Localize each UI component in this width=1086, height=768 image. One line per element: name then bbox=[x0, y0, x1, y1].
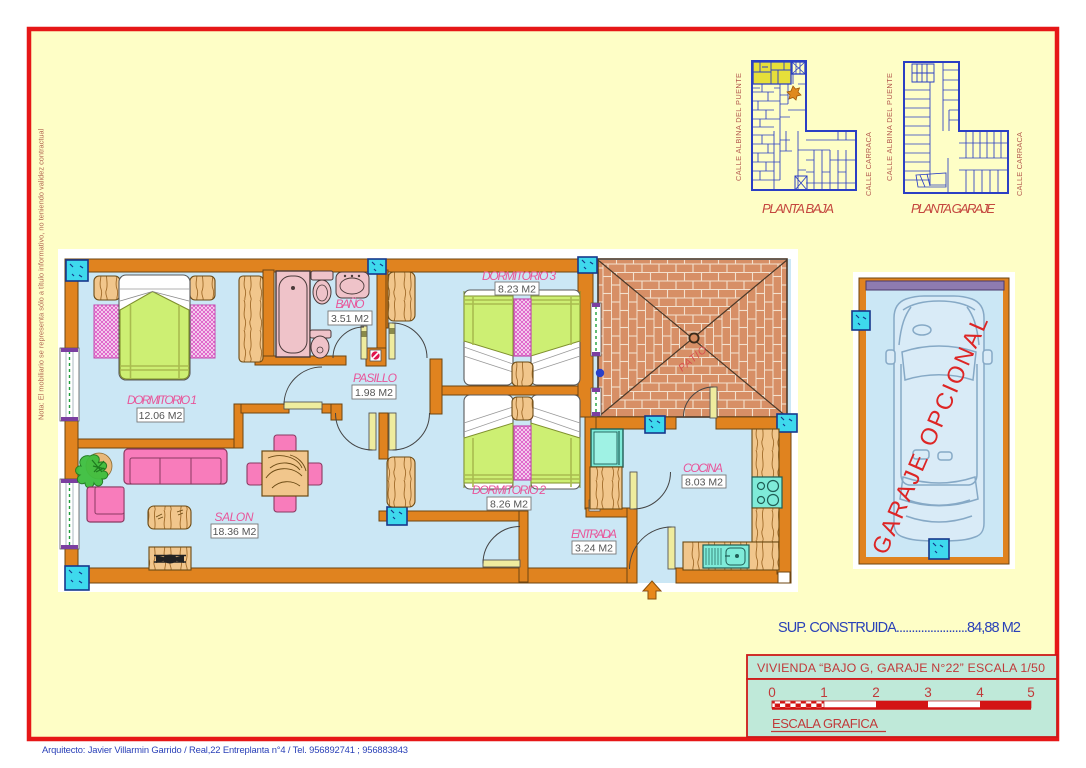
svg-text:PLANTA BAJA: PLANTA BAJA bbox=[762, 201, 834, 216]
svg-text:0: 0 bbox=[768, 685, 776, 700]
svg-text:8.26 M2: 8.26 M2 bbox=[490, 499, 528, 511]
svg-text:CALLE ALBINA DEL PUENTE: CALLE ALBINA DEL PUENTE bbox=[885, 73, 894, 181]
svg-text:SUP. CONSTRUIDA..............: SUP. CONSTRUIDA.......................84… bbox=[778, 620, 1021, 636]
svg-text:DORMITORIO 1: DORMITORIO 1 bbox=[127, 393, 197, 407]
svg-text:8.23 M2: 8.23 M2 bbox=[498, 284, 536, 296]
svg-text:3.24 M2: 3.24 M2 bbox=[575, 543, 613, 555]
svg-text:DORMITORIO 3: DORMITORIO 3 bbox=[482, 269, 556, 283]
svg-text:ENTRADA: ENTRADA bbox=[571, 527, 617, 541]
svg-text:VIVIENDA “BAJO G, GARAJE N: VIVIENDA “BAJO G, GARAJE N°22” ESCALA 1/… bbox=[757, 661, 1045, 675]
svg-text:PLANTA GARAJE: PLANTA GARAJE bbox=[911, 201, 995, 216]
svg-text:BAÑO: BAÑO bbox=[336, 297, 365, 311]
svg-text:8.03 M2: 8.03 M2 bbox=[685, 477, 723, 489]
svg-text:3.51 M2: 3.51 M2 bbox=[331, 313, 369, 325]
svg-text:2: 2 bbox=[872, 685, 880, 700]
svg-text:Nota: El mobiliario se rep: Nota: El mobiliario se representa sólo a… bbox=[37, 128, 46, 420]
svg-text:CALLE CARRACA: CALLE CARRACA bbox=[1015, 132, 1024, 196]
svg-text:COCINA: COCINA bbox=[683, 461, 723, 475]
svg-text:4: 4 bbox=[976, 685, 984, 700]
svg-text:PASILLO: PASILLO bbox=[353, 371, 397, 385]
svg-text:SALON: SALON bbox=[215, 510, 254, 524]
svg-text:CALLE CARRACA: CALLE CARRACA bbox=[864, 132, 873, 196]
svg-text:1.98 M2: 1.98 M2 bbox=[355, 387, 393, 399]
svg-text:5: 5 bbox=[1027, 685, 1035, 700]
svg-text:3: 3 bbox=[924, 685, 932, 700]
svg-text:ESCALA GRAFICA: ESCALA GRAFICA bbox=[772, 716, 878, 731]
svg-text:12.06 M2: 12.06 M2 bbox=[139, 410, 183, 422]
svg-text:Arquitecto: Javier Villarmin: Arquitecto: Javier Villarmin Garrido / R… bbox=[42, 744, 408, 755]
svg-text:1: 1 bbox=[820, 685, 828, 700]
svg-text:CALLE ALBINA DEL PUENTE: CALLE ALBINA DEL PUENTE bbox=[734, 73, 743, 181]
svg-text:DORMITORIO 2: DORMITORIO 2 bbox=[472, 483, 546, 497]
svg-text:18.36 M2: 18.36 M2 bbox=[213, 526, 257, 538]
